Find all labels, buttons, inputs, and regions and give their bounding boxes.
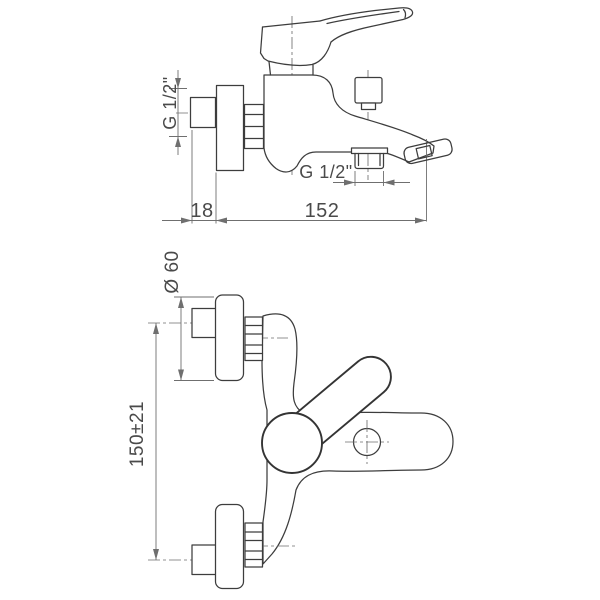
bottom-wall-connection — [192, 505, 263, 589]
shower-outlet — [352, 148, 388, 169]
top-inlet-pipe — [192, 309, 216, 338]
bottom-escutcheon — [216, 505, 244, 589]
side-view: G 1/2" 18 152 G 1/2" — [160, 8, 453, 224]
lever-handle — [261, 8, 413, 75]
dim-label-diameter-60: Ø 60 — [162, 250, 183, 293]
mixer-body-spout — [264, 75, 434, 172]
wall-escutcheon — [217, 86, 244, 171]
inlet-pipe — [191, 98, 216, 128]
dimension-centres-150: 150±21 — [127, 323, 159, 560]
top-escutcheon — [216, 295, 244, 381]
technical-drawing-canvas: G 1/2" 18 152 G 1/2" — [0, 0, 600, 600]
top-union-nut — [245, 317, 263, 361]
faucet-technical-drawing: G 1/2" 18 152 G 1/2" — [0, 0, 600, 600]
front-view: Ø 60 150±21 — [127, 250, 453, 588]
dim-label-offset-18: 18 — [190, 200, 213, 222]
dimension-inlet-thread: G 1/2" — [160, 70, 187, 155]
dim-label-centres-150: 150±21 — [127, 401, 148, 467]
union-nut — [245, 105, 264, 149]
diverter-knob — [355, 78, 382, 110]
dim-label-shower-thread: G 1/2" — [299, 162, 352, 182]
dim-label-inlet-thread: G 1/2" — [160, 76, 180, 129]
bottom-union-nut — [245, 523, 263, 567]
lever-base-circle — [262, 413, 322, 473]
dim-label-reach-152: 152 — [305, 200, 340, 222]
bottom-inlet-pipe — [192, 545, 216, 575]
top-wall-connection — [192, 295, 263, 381]
